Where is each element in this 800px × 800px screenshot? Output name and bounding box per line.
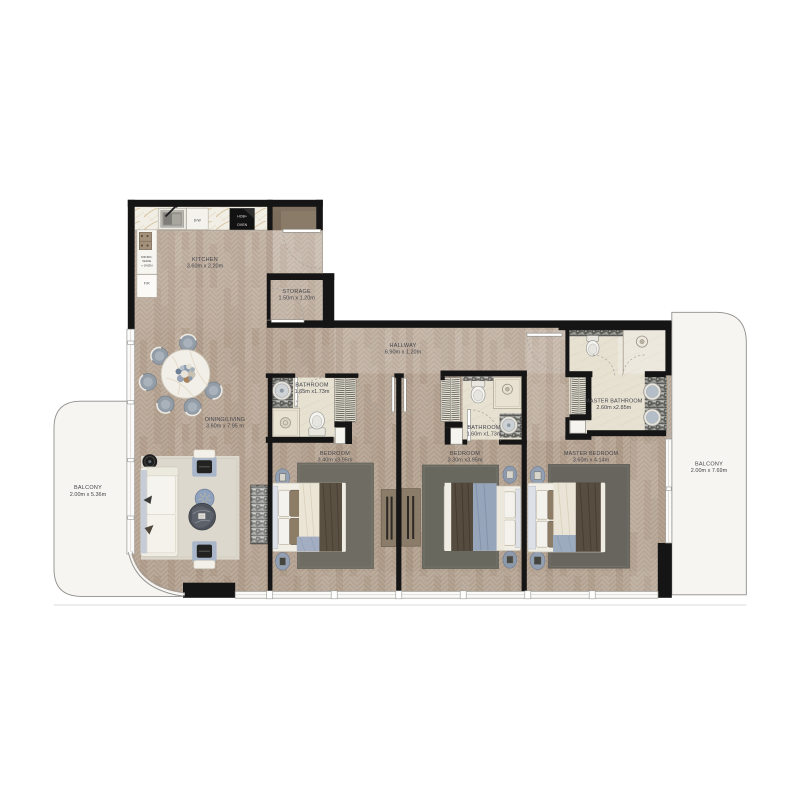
- svg-text:BEDROOM: BEDROOM: [450, 451, 480, 457]
- svg-text:DINING/LIVING: DINING/LIVING: [205, 417, 245, 423]
- svg-text:+ OVEN: + OVEN: [141, 264, 152, 268]
- svg-text:OVEN: OVEN: [237, 223, 248, 227]
- svg-text:3.30m x3.95m: 3.30m x3.95m: [448, 457, 483, 463]
- svg-text:HOB+: HOB+: [237, 214, 247, 218]
- svg-text:HALLWAY: HALLWAY: [389, 343, 416, 349]
- svg-text:3.40m x3.95m: 3.40m x3.95m: [318, 457, 353, 463]
- svg-text:1.60m x1.73m: 1.60m x1.73m: [467, 432, 502, 438]
- svg-text:D/W: D/W: [194, 218, 202, 222]
- svg-text:3.60m x 2.20m: 3.60m x 2.20m: [187, 263, 224, 269]
- svg-text:BALCONY: BALCONY: [695, 461, 723, 467]
- svg-text:BEDROOM: BEDROOM: [320, 451, 350, 457]
- svg-text:2.00m x 7.69m: 2.00m x 7.69m: [691, 468, 728, 474]
- svg-text:KITCHEN: KITCHEN: [192, 257, 218, 263]
- svg-text:STORAGE: STORAGE: [282, 289, 311, 295]
- svg-text:3.60m x 4.14m: 3.60m x 4.14m: [573, 457, 610, 463]
- svg-text:F/R: F/R: [144, 281, 150, 285]
- svg-text:2.00m x 5.36m: 2.00m x 5.36m: [70, 492, 107, 498]
- svg-text:BALCONY: BALCONY: [74, 485, 102, 491]
- svg-text:1.65m x1.73m: 1.65m x1.73m: [295, 389, 330, 395]
- svg-text:1.50m x 1.20m: 1.50m x 1.20m: [279, 295, 316, 301]
- svg-text:BATHROOM: BATHROOM: [295, 382, 329, 388]
- svg-text:MASTER BATHROOM: MASTER BATHROOM: [585, 399, 643, 405]
- svg-text:2.60m x2.85m: 2.60m x2.85m: [596, 405, 631, 411]
- svg-text:MASTER BEDROOM: MASTER BEDROOM: [564, 451, 619, 457]
- svg-text:6.90m x 1.20m: 6.90m x 1.20m: [385, 349, 422, 355]
- svg-text:WAVE: WAVE: [142, 259, 151, 263]
- svg-text:3.60m x 7.95 m: 3.60m x 7.95 m: [206, 423, 244, 429]
- svg-text:MICRO-: MICRO-: [141, 255, 152, 259]
- svg-text:BATHROOM: BATHROOM: [467, 425, 501, 431]
